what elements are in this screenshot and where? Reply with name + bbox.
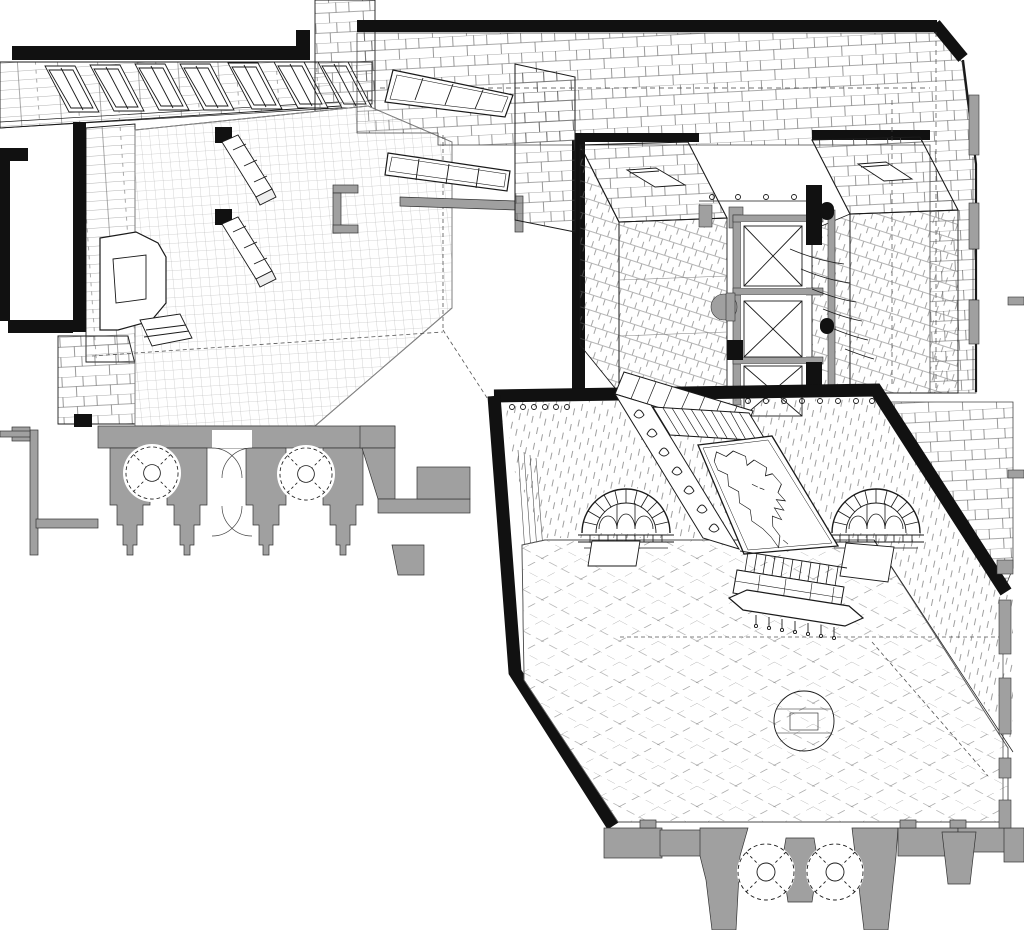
arch-apron-right	[840, 543, 894, 582]
window-mullion-poche	[969, 95, 979, 344]
arch-apron-left	[588, 541, 640, 566]
bridge-pier	[515, 64, 575, 232]
stair-tower-left	[580, 142, 727, 393]
axonometric-drawing	[0, 0, 1024, 930]
